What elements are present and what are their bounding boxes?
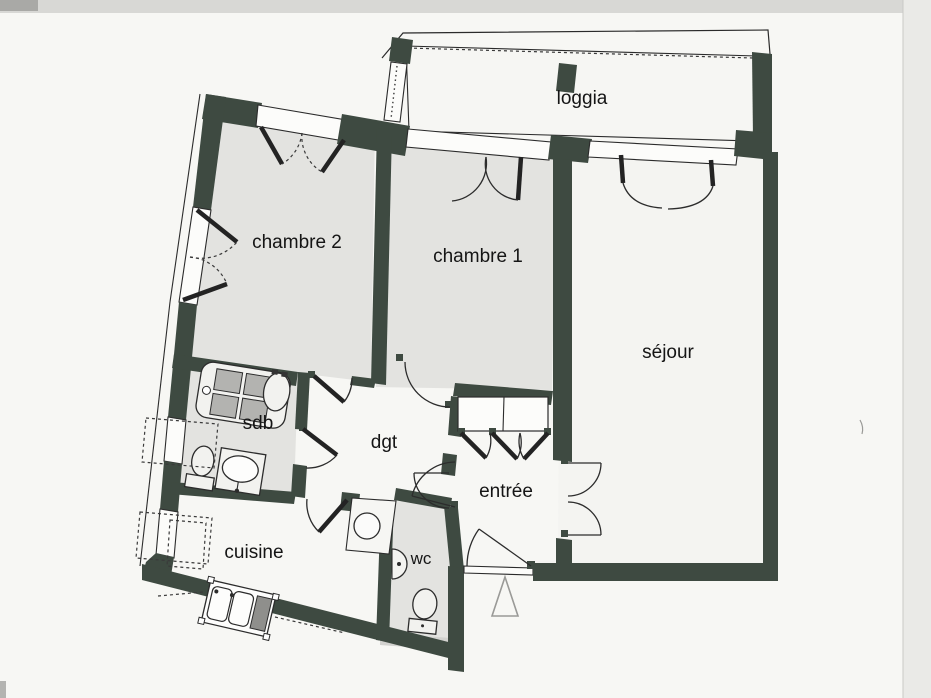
label-chambre1: chambre 1 (433, 246, 523, 267)
label-sdb: sdb (243, 413, 274, 434)
door-cuisine (307, 499, 347, 532)
floor-plan-page: loggia chambre 2 chambre 1 séjour sdb dg… (0, 0, 931, 698)
label-cuisine: cuisine (224, 542, 283, 563)
closet-entree (458, 397, 551, 459)
door-sdb (299, 424, 337, 468)
floor-plan-canvas: loggia chambre 2 chambre 1 séjour sdb dg… (0, 0, 931, 698)
label-chambre2: chambre 2 (252, 232, 342, 253)
loggia-balcony (382, 30, 772, 141)
label-dgt: dgt (371, 432, 398, 453)
label-entree: entrée (479, 481, 533, 502)
kitchen-sink (198, 576, 280, 640)
label-sejour: séjour (642, 342, 694, 363)
washbasin (215, 448, 266, 497)
label-loggia: loggia (557, 88, 608, 109)
counter-line-left (158, 592, 203, 596)
entrance-arrow (492, 577, 518, 616)
water-heater (354, 513, 380, 539)
label-wc: wc (410, 549, 432, 568)
